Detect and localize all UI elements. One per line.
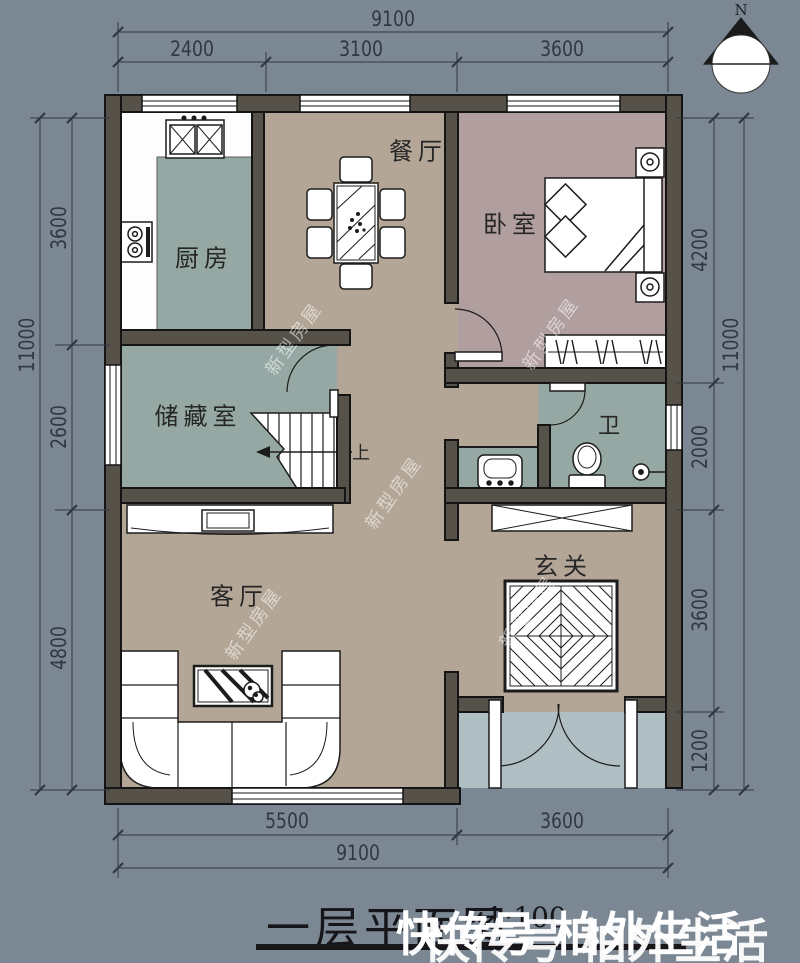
dim-right-seg-4: 1200 (688, 729, 712, 773)
window-bedroom-icon (507, 95, 620, 112)
dim-right-total: 11000 (719, 318, 743, 373)
room-label-bedroom: 卧室 (483, 205, 541, 240)
dim-right-seg-1: 4200 (688, 228, 712, 272)
dim-left-seg-2: 2600 (47, 405, 71, 449)
dim-top-seg-3: 3600 (540, 37, 584, 61)
dim-top-seg-1: 2400 (170, 37, 214, 61)
tv-stand-icon (127, 505, 333, 535)
stairs-up-label: 上 (352, 439, 370, 465)
window-bath-icon (666, 405, 682, 450)
platform-watermark-copy-2: 快传号 柏外生活 (423, 903, 768, 963)
room-label-bath: 卫 (598, 408, 620, 440)
window-dining-icon (300, 95, 410, 112)
dim-bottom-seg-2: 3600 (540, 809, 584, 833)
dim-left-seg-1: 3600 (47, 206, 71, 250)
dim-right-seg-3: 3600 (688, 588, 712, 632)
dim-right-seg-2: 2000 (688, 425, 712, 469)
compass-north-label: N (734, 1, 747, 19)
window-kitchen-icon (142, 95, 237, 112)
bed-icon (545, 178, 662, 272)
dim-left-total: 11000 (15, 318, 39, 373)
window-storage-icon (105, 365, 121, 465)
window-living-icon (232, 788, 403, 804)
room-label-storage: 储藏室 (155, 397, 242, 432)
stove-icon (121, 222, 152, 262)
platform-watermark-overlay: 快传号 柏外生活 快传号 柏外生活 (396, 896, 800, 960)
room-label-dining: 餐厅 (389, 132, 447, 167)
washbasin-icon (478, 455, 522, 489)
room-label-kitchen: 厨房 (175, 239, 233, 274)
kitchen-sink-icon (166, 116, 224, 158)
north-compass-icon (704, 18, 778, 93)
wardrobe-icon (545, 335, 666, 368)
floor-plan-canvas: N 厨房 餐厅 卧室 储藏室 卫 客厅 玄关 上 9100 2400 3100 … (0, 0, 800, 963)
dim-bottom-seg-1: 5500 (265, 809, 309, 833)
dim-bottom-total: 9100 (336, 841, 380, 865)
shoe-cabinet-icon (492, 505, 632, 531)
dim-top-seg-2: 3100 (339, 37, 383, 61)
dim-left-seg-3: 4800 (47, 626, 71, 670)
dim-top-total: 9100 (371, 7, 415, 31)
coffee-table-icon (194, 666, 272, 706)
